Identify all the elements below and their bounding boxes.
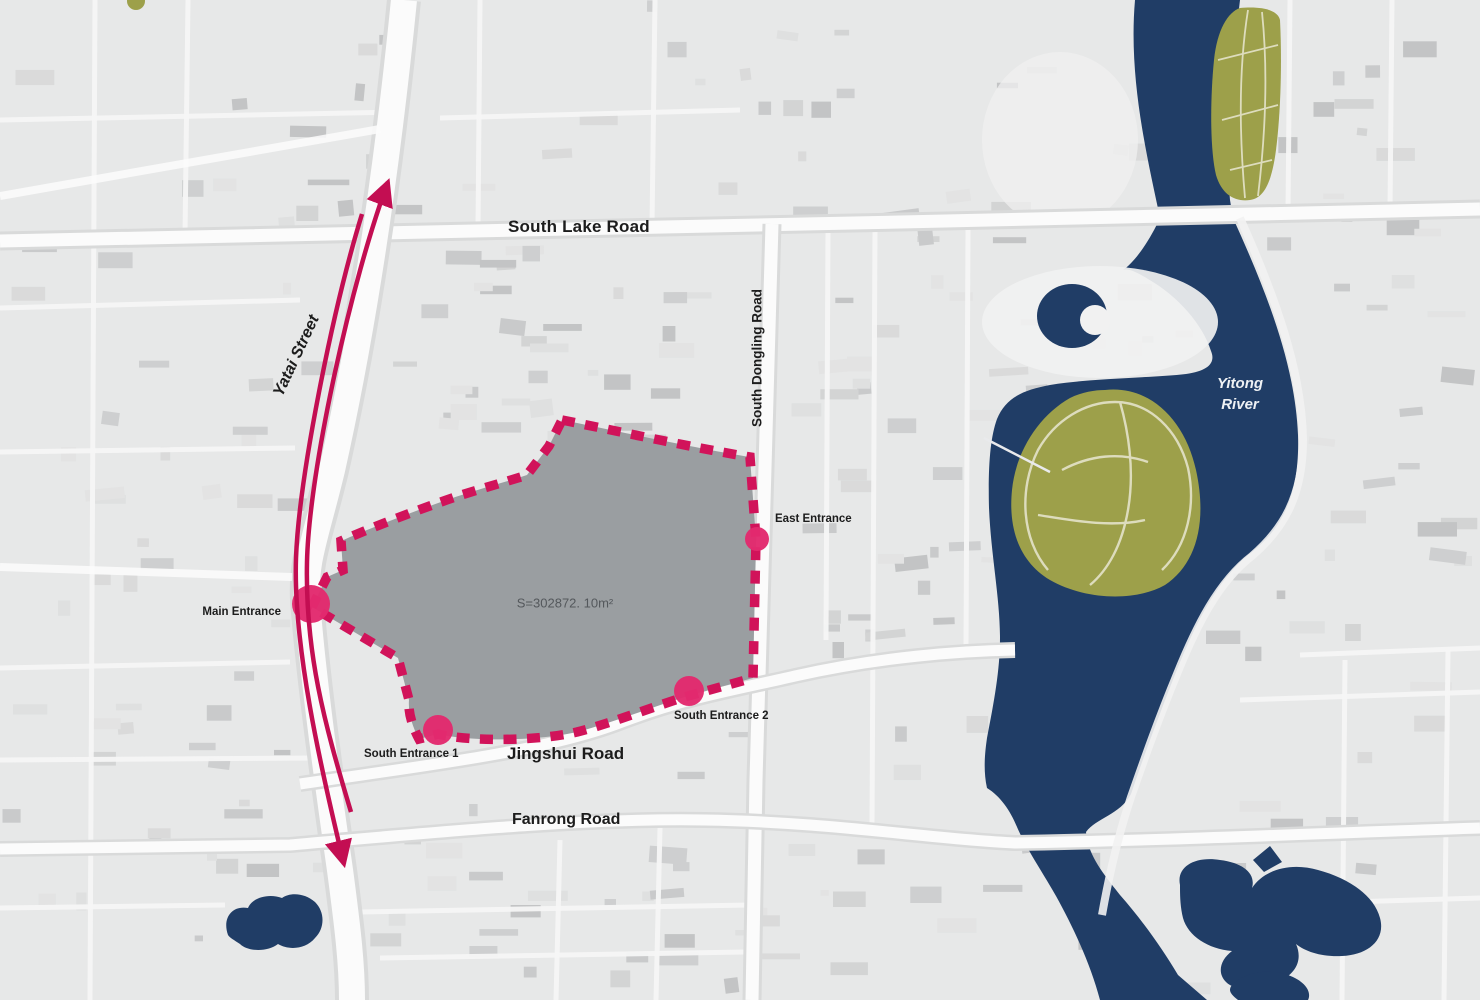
road-label-jingshui: Jingshui Road bbox=[507, 744, 624, 764]
map-graphics bbox=[0, 0, 1480, 1000]
road-label-fanrong: Fanrong Road bbox=[512, 811, 620, 829]
east-entrance-marker bbox=[745, 527, 769, 551]
south-entrance-2-marker bbox=[674, 676, 704, 706]
south-entrance-1-marker bbox=[423, 715, 453, 745]
riverside-park bbox=[1211, 8, 1281, 201]
river-label-line1: Yitong bbox=[1217, 373, 1263, 394]
road-label-south-dongling: South Dongling Road bbox=[750, 289, 765, 427]
label-east-entrance: East Entrance bbox=[775, 513, 852, 525]
riverbank-clearing bbox=[982, 52, 1138, 228]
site-location-plan: South Lake Road Yatai Street South Dongl… bbox=[0, 0, 1480, 1000]
road-label-south-lake: South Lake Road bbox=[508, 217, 650, 237]
label-site-area: S=302872. 10m² bbox=[517, 596, 613, 611]
label-south-entrance-1: South Entrance 1 bbox=[364, 748, 459, 760]
river-label-line2: River bbox=[1217, 394, 1263, 415]
river-label-yitong: Yitong River bbox=[1217, 373, 1263, 415]
label-main-entrance: Main Entrance bbox=[202, 606, 281, 618]
label-south-entrance-2: South Entrance 2 bbox=[674, 710, 769, 722]
crescent-pond-island bbox=[1080, 305, 1110, 335]
